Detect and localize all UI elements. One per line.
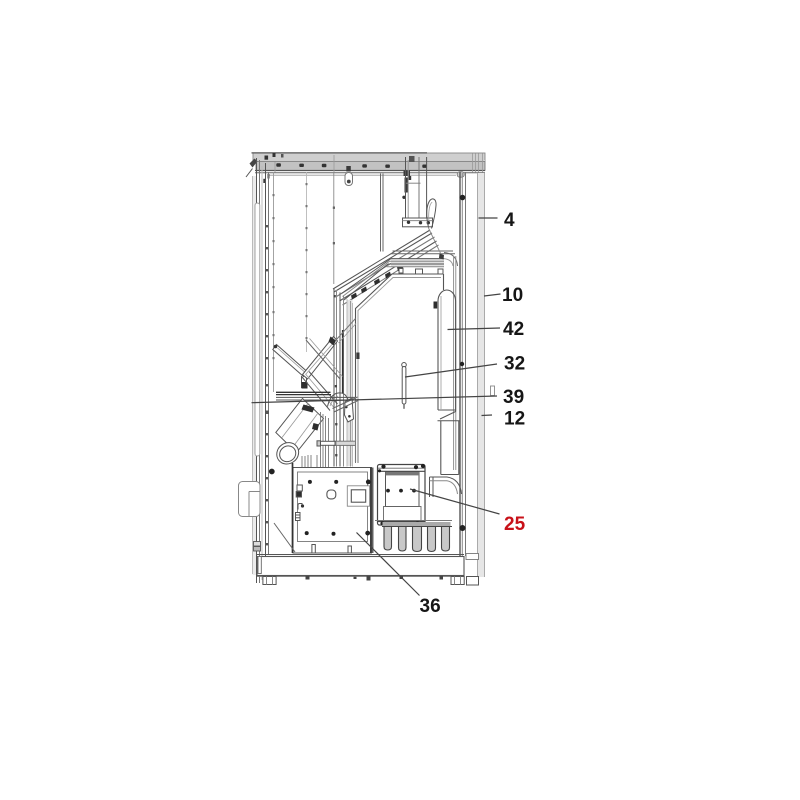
svg-text:42: 42: [503, 319, 524, 340]
svg-text:10: 10: [502, 285, 523, 306]
svg-text:12: 12: [504, 409, 525, 430]
svg-text:25: 25: [504, 514, 526, 535]
svg-text:39: 39: [503, 387, 524, 408]
svg-text:36: 36: [420, 596, 441, 617]
svg-text:4: 4: [504, 210, 515, 231]
svg-text:32: 32: [504, 353, 525, 374]
